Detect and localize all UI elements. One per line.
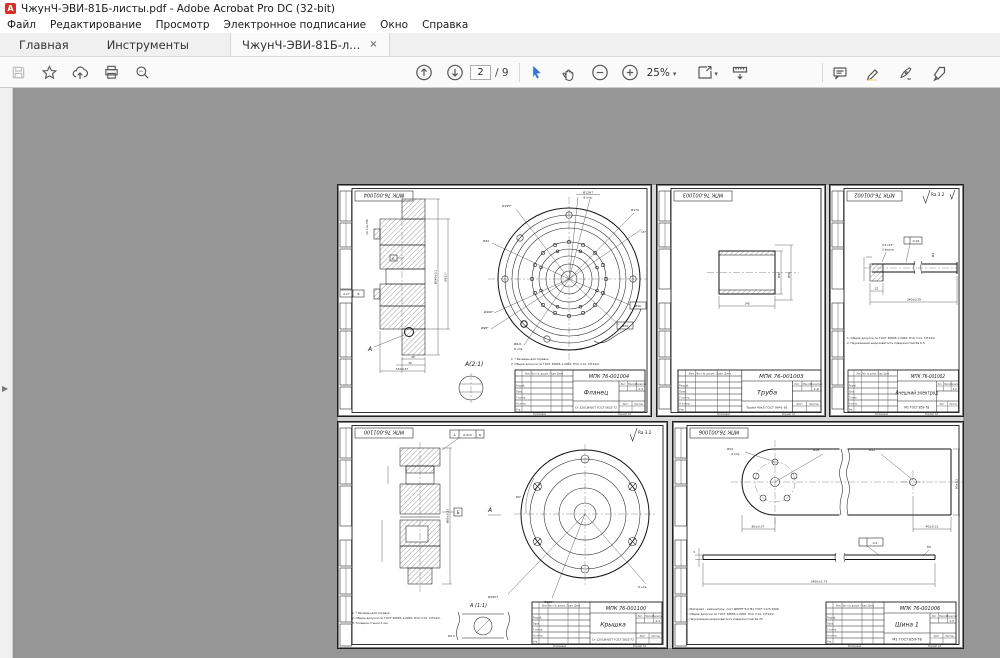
dim-label: Ø195* — [502, 203, 512, 208]
menu-view[interactable]: Просмотр — [149, 19, 217, 31]
detail-label: А(2:1) — [464, 361, 483, 368]
fill-sign-tool-button[interactable] — [930, 64, 948, 82]
doc-number: МПК 76-001004 — [589, 374, 629, 380]
electrode-view: 22 340±0.29 0.5×45° 2 фаски 0.19 Ø4 — [864, 237, 960, 305]
tb-format: Формат А4 — [633, 645, 647, 648]
dim-label: Ø170 — [631, 207, 639, 212]
page-fit-caret-icon[interactable]: ▾ — [714, 70, 718, 78]
tb-role: Утв. — [827, 641, 832, 644]
doc-number: МПК 76-001003 — [759, 374, 803, 380]
tb-role: Разраб. — [679, 385, 689, 388]
doc-number: МПК 76-001006 — [900, 606, 940, 612]
tb-header: Изм. Лист № докум. Подп. Дата — [525, 372, 564, 375]
angle-label: 60° — [516, 495, 522, 499]
doc-number: МПК 76-001100 — [606, 606, 646, 612]
star-button[interactable] — [40, 64, 58, 82]
zoom-level-value[interactable]: 25% — [647, 67, 670, 79]
chamfer-label: 2 фаски — [882, 248, 894, 252]
part-name: Труба — [757, 389, 777, 397]
tb-copy: Копировал — [533, 413, 547, 416]
dim-label: Ø6,6 — [514, 341, 521, 346]
measure-tool-button[interactable] — [731, 64, 749, 82]
print-button[interactable] — [102, 64, 120, 82]
dim-label: Ø12 — [869, 447, 875, 452]
tab-document-label: ЧжунЧ-ЭВИ-81Б-л... — [242, 38, 360, 52]
material: Труба 40х5 ГОСТ 9941-81 — [745, 406, 787, 410]
sheet-flange: МПК 76-001004 — [338, 185, 651, 416]
highlight-tool-button[interactable] — [864, 64, 882, 82]
note-line: 3. Толщина стенки 1 мм. — [352, 621, 389, 625]
zoom-dropdown-caret-icon[interactable]: ▾ — [673, 70, 677, 78]
chamfer-label: 0.5×45° — [882, 243, 894, 247]
scale-value: 1:2 — [953, 387, 957, 391]
tb-copy: Копировал — [717, 413, 731, 416]
tb-role: Н.контр. — [849, 402, 858, 405]
tb-sheet: Лист — [934, 635, 940, 638]
scale-value: 1:2 — [949, 619, 954, 623]
radius-label: R0.5 — [448, 634, 455, 638]
tb-copy: Копировал — [875, 413, 889, 416]
share-upload-button[interactable] — [71, 64, 89, 82]
boxed-dim-label: 0.2 — [873, 541, 878, 545]
close-tab-icon[interactable]: × — [369, 39, 377, 50]
note-line: 1. * Размеры для справок. — [352, 611, 391, 615]
sheet-stamp: МПК 76-001100 — [364, 428, 404, 434]
toolbar-divider — [519, 63, 520, 82]
dim-label: Ø140±0.2 — [433, 270, 438, 285]
tb-scale: Масштаб — [946, 615, 957, 618]
zoom-in-button[interactable] — [621, 64, 639, 82]
next-page-button[interactable] — [446, 64, 464, 82]
tb-role: Н.контр. — [533, 635, 544, 638]
tb-copy: Копировал — [848, 645, 862, 648]
sheet-stamp: МПК 76-001003 — [683, 191, 723, 197]
boxed-dim-label: Ø34 — [622, 323, 628, 328]
part-name: Фланец — [584, 390, 608, 397]
tube-view: Ø40 Ø50 140 — [707, 245, 799, 309]
tolerance-datum: Б — [479, 433, 481, 437]
flange-front-view: Ø12H7 8 отв. Ø195* Ø170 15° Ø32 Ø160* Ø9… — [481, 190, 648, 364]
tb-lit: Лит. — [638, 615, 644, 618]
tb-role: Утв. — [516, 409, 521, 412]
tb-format: Формат А4 — [925, 413, 939, 416]
note-line: 2. Общие допуски по ГОСТ 30893.1-2002: H… — [686, 612, 775, 616]
note-line: 2. Общие допуски по ГОСТ 30893.1-2002: H… — [511, 362, 600, 366]
tolerance-value: 0.013 — [463, 433, 472, 437]
flange-section-view: Б Ø140±0.2 Ø152* 28 30 55±0.37 20 отв — [340, 193, 450, 373]
window-title: ЧжунЧ-ЭВИ-81Б-листы.pdf - Adobe Acrobat … — [21, 3, 335, 15]
tb-role: Т.контр. — [849, 396, 858, 399]
tb-sheets: Листов — [949, 403, 957, 406]
note-line: 2. Общие допуски по ГОСТ 30893.1-2002: H… — [352, 616, 441, 620]
material: М1 ГОСТ 859-78 — [892, 638, 921, 642]
dim-label: Ø160* — [484, 309, 494, 314]
note-line: 1. Материал - заменитель: лист ДПРНТ 8,0… — [686, 607, 780, 611]
boxed-dim-label: 0.19 — [913, 239, 920, 243]
tb-scale: Масштаб — [810, 383, 823, 386]
dim-label: Ø4 — [930, 253, 935, 257]
cover-detail-view: А (1:1) R0.5 — [448, 603, 510, 640]
tb-role: Н.контр. — [679, 403, 691, 406]
sheet-stamp: МПК 76-001004 — [364, 191, 404, 197]
tb-sheet: Лист — [623, 403, 629, 406]
ra-value: Ra 3.2 — [931, 192, 945, 197]
tb-lit: Лит. — [794, 383, 800, 386]
tb-role: Т.контр. — [679, 397, 690, 400]
title-block: Изм. Лист № докум. Подп. Дата Разраб. Пр… — [826, 602, 958, 644]
tb-sheets: Листов — [634, 403, 643, 406]
hole-count-label: 8 отв. — [583, 196, 592, 200]
dim-label: 140 — [744, 302, 750, 306]
menu-bar: Файл Редактирование Просмотр Электронное… — [0, 17, 1000, 33]
sheet-stamp: МПК 76-001002 — [854, 191, 894, 197]
toolbar-divider — [822, 63, 823, 82]
tab-document[interactable]: ЧжунЧ-ЭВИ-81Б-л... × — [230, 33, 390, 56]
scale-value: 1:2 — [814, 387, 819, 391]
dim-label: 340±0.29 — [907, 298, 921, 302]
tb-header: Изм. Лист № докум. Подп. Дата — [542, 604, 581, 607]
material: Ст 12Х18Н10Т ГОСТ 5632-72 — [575, 406, 617, 410]
previous-page-button[interactable] — [415, 64, 433, 82]
sheet-cover: МПК 76-001100 Ra 3.2 ⊥ 0.013 Б — [338, 422, 667, 648]
tb-header: Изм. Лист № докум. Подп. Дата — [689, 372, 732, 375]
select-tool-button[interactable] — [528, 64, 546, 82]
title-block: Изм. Лист № докум. Подп. Дата Разраб. Пр… — [515, 370, 647, 412]
note-line: 2. Неуказанная шероховатость поверхносте… — [847, 341, 926, 345]
search-icon[interactable] — [133, 64, 151, 82]
dim-label: Ø40 — [776, 272, 781, 278]
toolbar: 2 / 9 25% ▾ ▾ — [0, 57, 1000, 88]
dim-label: Ø102* — [544, 599, 554, 604]
title-block: Изм. Лист № докум. Подп. Дата Разраб. Пр… — [678, 370, 823, 412]
menu-edit[interactable]: Редактирование — [43, 19, 149, 31]
detail-label: А (1:1) — [469, 603, 487, 609]
note-line: 3. Неуказанная шероховатость поверхносте… — [686, 617, 764, 621]
page-fit-button[interactable] — [696, 64, 714, 82]
acrobat-window: A ЧжунЧ-ЭВИ-81Б-листы.pdf - Adobe Acroba… — [0, 0, 1000, 658]
tb-role: Разраб. — [827, 617, 836, 620]
part-name: Внешний электрод — [896, 390, 939, 396]
doc-number: МПК 76-001002 — [911, 374, 945, 380]
menu-window[interactable]: Окно — [373, 19, 415, 31]
dim-label: Ø152* — [443, 272, 448, 282]
tab-bar: Главная Инструменты ЧжунЧ-ЭВИ-81Б-л... × — [0, 33, 1000, 57]
datum-label: Б — [457, 510, 460, 515]
scale-value: 1:1 — [638, 387, 643, 391]
menu-esign[interactable]: Электронное подписание — [217, 19, 374, 31]
dim-label: Ø98* — [481, 325, 489, 330]
sheet-busbar: МПК 76-001006 — [673, 422, 963, 648]
busbar-top-view: Ø12 4 отв. Ø28 Ø12 80±0.37 40±0.31 80±0.… — [727, 440, 963, 532]
tb-scale: Масштаб — [652, 615, 663, 618]
menu-help[interactable]: Справка — [415, 19, 475, 31]
dim-label: Ø32 — [483, 238, 489, 243]
tb-role: Разраб. — [516, 385, 525, 388]
tb-format: Формат А4 — [928, 645, 942, 648]
note-line: 1. * Размеры для справок. — [511, 357, 550, 361]
tb-sheets: Листов — [809, 403, 819, 406]
hand-tool-button[interactable] — [560, 64, 578, 82]
dim-label: 55±0.37 — [396, 367, 408, 371]
tb-sheet: Лист — [939, 403, 945, 406]
tb-role: Пров. — [679, 391, 687, 394]
tb-sheet: Лист — [796, 403, 803, 406]
sign-tool-button[interactable] — [897, 64, 915, 82]
sheet-tube: МПК 76-001003 Ø40 Ø50 1 — [657, 185, 825, 416]
sheet-electrode: МПК 76-001002 Ra 3.2 — [830, 185, 963, 416]
tolerance-frame: ⊥ 0.013 Б — [442, 430, 484, 450]
page-total-label: / 9 — [495, 67, 509, 79]
part-name: Шина 1 — [895, 622, 919, 629]
flange-detail-view: А(2:1) — [459, 361, 483, 403]
tb-header: Изм. Лист № докум. Подп. Дата — [836, 604, 875, 607]
tb-sheets: Листов — [945, 635, 954, 638]
dim-label: 80±0.2 — [955, 479, 959, 490]
menu-file[interactable]: Файл — [0, 19, 43, 31]
hole-count-label: 4 отв. — [731, 452, 740, 456]
tab-tools[interactable]: Инструменты — [88, 33, 208, 56]
tb-lit: Лит. — [932, 615, 938, 618]
perpendicularity-icon: ⊥ — [453, 432, 457, 437]
dim-label: 22 — [875, 287, 879, 291]
radius-label: R5 — [927, 545, 931, 549]
tb-sheets: Листов — [651, 635, 660, 638]
tb-copy: Копировал — [553, 645, 567, 648]
dim-label: Ø85±0.11 — [445, 509, 450, 524]
boxed-dim-label: Ø10 — [635, 303, 641, 308]
dim-label: 28 — [411, 355, 415, 359]
dim-label: Ø12 — [727, 446, 733, 451]
view-arrow-label: А — [367, 346, 372, 353]
scale-value: 1:1 — [655, 619, 660, 623]
tb-lit: Лит. — [621, 383, 627, 386]
tb-role: Н.контр. — [516, 403, 527, 406]
tb-scale: Масштаб — [635, 383, 646, 386]
acrobat-logo-icon: A — [5, 3, 16, 14]
tb-lit: Лит. — [938, 383, 943, 386]
angle-label: 15° — [641, 230, 647, 234]
tolerance-value: 0.27 — [343, 292, 349, 296]
view-arrow-label: А — [487, 507, 492, 514]
tb-role: Т.контр. — [827, 629, 837, 632]
cover-section-view: Ø85±0.11 Б — [382, 442, 462, 592]
page-number-input[interactable]: 2 — [470, 65, 491, 80]
ra-value: Ra 3.2 — [638, 430, 652, 435]
document-workspace: ▶ — [0, 88, 1000, 658]
dim-label: Ø10H7 — [488, 594, 498, 599]
tolerance-datum: Б — [358, 292, 360, 296]
document-canvas: МПК 76-001004 — [14, 88, 1000, 658]
dim-label: 30 — [408, 361, 412, 365]
tb-sheet: Лист — [640, 635, 646, 638]
hole-count-label: 6 отв. — [514, 347, 523, 351]
dim-label: Ø28 — [813, 447, 819, 452]
dim-label: 3450±2.75 — [811, 580, 828, 584]
tb-role: Утв. — [679, 409, 685, 412]
material: Ст 12Х18Н10Т ГОСТ 5632-72 — [592, 638, 634, 642]
dim-label: 20 отв. М6 — [365, 219, 369, 235]
material: М1 ГОСТ 859-78 — [904, 405, 929, 409]
dim-label: 80±0.37 — [751, 525, 764, 529]
roughness-mark: Ra 3.2 — [923, 190, 955, 203]
tb-format: Формат А4 — [782, 413, 796, 416]
note-line: 1. Общие допуски по ГОСТ 30893.1-2002: H… — [847, 336, 936, 340]
tb-role: Пров. — [516, 391, 523, 394]
part-name: Крышка — [600, 622, 626, 629]
tb-format: Формат А4 — [618, 413, 632, 416]
comment-tool-button[interactable] — [831, 64, 849, 82]
busbar-side-view: 3 0.2 R5 3450±2.75 — [693, 538, 935, 587]
tb-header: Изм. Лист № докум. Подп. Дата — [856, 372, 889, 375]
cover-front-view: Ø10H7 Ø102* 6 отв. 60° — [488, 444, 656, 604]
navigation-rail: ▶ — [0, 88, 13, 658]
tb-role: Пров. — [827, 623, 834, 626]
dim-label: 3 — [693, 550, 695, 554]
tb-role: Утв. — [533, 641, 538, 644]
tab-tools-label: Инструменты — [107, 38, 189, 52]
tb-role: Пров. — [849, 390, 855, 393]
save-button[interactable] — [9, 64, 27, 82]
tb-role: Разраб. — [849, 384, 857, 387]
expand-panel-arrow-icon[interactable]: ▶ — [2, 384, 8, 393]
dim-label: Ø50 — [786, 272, 791, 278]
tb-role: Пров. — [533, 623, 540, 626]
sheet-stamp: МПК 76-001006 — [699, 428, 739, 434]
title-bar: A ЧжунЧ-ЭВИ-81Б-листы.pdf - Adobe Acroba… — [0, 0, 1000, 17]
tb-role: Утв. — [849, 408, 853, 411]
title-block: Изм. Лист № докум. Подп. Дата Разраб. Пр… — [848, 370, 960, 412]
tab-home[interactable]: Главная — [0, 33, 88, 56]
tab-home-label: Главная — [19, 38, 69, 52]
tb-role: Т.контр. — [533, 629, 543, 632]
pdf-page: МПК 76-001004 — [338, 185, 963, 648]
roughness-mark: Ra 3.2 — [630, 428, 652, 441]
hole-dim-label: Ø12H7 — [583, 190, 593, 195]
tb-role: Н.контр. — [827, 635, 838, 638]
tb-role: Т.контр. — [516, 397, 526, 400]
hole-count-label: 6 отв. — [638, 585, 647, 589]
zoom-out-button[interactable] — [591, 64, 609, 82]
tb-role: Разраб. — [533, 617, 542, 620]
title-block: Изм. Лист № докум. Подп. Дата Разраб. Пр… — [532, 602, 664, 644]
dim-label: 40±0.31 — [925, 525, 938, 529]
